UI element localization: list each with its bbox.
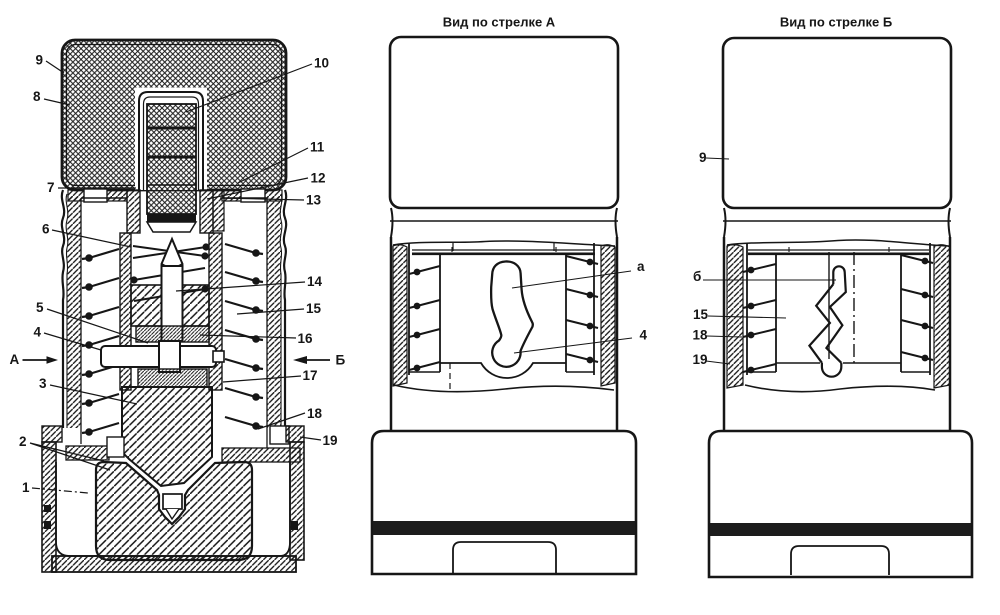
- svg-text:3: 3: [39, 376, 47, 391]
- svg-text:12: 12: [311, 171, 326, 186]
- svg-text:9: 9: [699, 150, 707, 165]
- svg-text:А: А: [10, 352, 20, 367]
- svg-text:9: 9: [36, 53, 44, 68]
- svg-text:13: 13: [306, 193, 322, 208]
- svg-text:18: 18: [693, 328, 709, 343]
- svg-text:19: 19: [693, 352, 708, 367]
- svg-text:15: 15: [693, 307, 709, 322]
- svg-text:18: 18: [307, 406, 323, 421]
- svg-text:4: 4: [640, 328, 648, 343]
- svg-text:7: 7: [47, 180, 55, 195]
- svg-text:2: 2: [19, 434, 27, 449]
- svg-text:6: 6: [42, 222, 50, 237]
- svg-text:15: 15: [306, 301, 322, 316]
- svg-text:Б: Б: [336, 353, 346, 368]
- svg-text:а: а: [637, 259, 645, 274]
- svg-text:5: 5: [36, 300, 44, 315]
- svg-text:1: 1: [22, 480, 30, 495]
- svg-text:16: 16: [298, 331, 314, 346]
- svg-text:Вид по стрелке А: Вид по стрелке А: [443, 15, 556, 30]
- svg-text:4: 4: [34, 325, 42, 340]
- svg-text:11: 11: [310, 140, 325, 155]
- svg-text:б: б: [693, 269, 701, 284]
- svg-text:17: 17: [303, 368, 318, 383]
- svg-text:Вид по стрелке Б: Вид по стрелке Б: [780, 15, 892, 30]
- svg-text:8: 8: [33, 89, 41, 104]
- svg-text:14: 14: [307, 274, 323, 289]
- svg-text:10: 10: [314, 56, 329, 71]
- svg-text:19: 19: [323, 433, 338, 448]
